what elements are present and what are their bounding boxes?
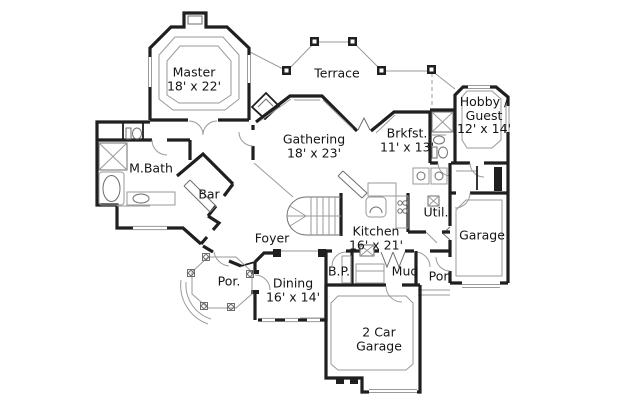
room-dims: 16' x 21' bbox=[349, 238, 403, 252]
room-dims: 18' x 22' bbox=[167, 79, 221, 93]
terrace-column-icon bbox=[310, 37, 319, 46]
room-label-porch-left: Por. bbox=[218, 274, 241, 288]
room-label-kitchen: Kitchen16' x 21' bbox=[349, 225, 403, 252]
room-name: Bar bbox=[198, 187, 219, 201]
bench-icon bbox=[356, 264, 384, 283]
room-name: Kitchen bbox=[349, 225, 403, 239]
room-name: Hobby / Guest bbox=[455, 95, 513, 122]
room-name: Foyer bbox=[255, 231, 290, 245]
closet-hall bbox=[97, 122, 190, 155]
fireplace-icon bbox=[188, 16, 202, 24]
terrace-column-icon bbox=[282, 66, 291, 75]
room-name: Brkfst. bbox=[380, 127, 434, 141]
porch-column-icon bbox=[228, 304, 235, 311]
room-name: 2 Car Garage bbox=[352, 326, 406, 353]
room-name: Terrace bbox=[314, 66, 359, 80]
room-label-bar: Bar bbox=[198, 187, 219, 201]
sink-icon bbox=[127, 192, 175, 205]
room-name: Util. bbox=[424, 205, 449, 219]
washer-dryer-icon bbox=[413, 168, 447, 184]
stairs-icon bbox=[287, 197, 341, 235]
room-name: Garage bbox=[459, 228, 505, 242]
room-label-dining: Dining16' x 14' bbox=[266, 277, 320, 304]
room-label-brkfst: Brkfst.11' x 13' bbox=[380, 127, 434, 154]
room-label-garage-two-car: 2 Car Garage bbox=[352, 326, 406, 353]
room-label-gathering: Gathering18' x 23' bbox=[283, 133, 345, 160]
terrace-column-icon bbox=[348, 37, 357, 46]
toilet-icon bbox=[432, 147, 448, 158]
room-dims: 16' x 14' bbox=[266, 290, 320, 304]
room-name: Por. bbox=[218, 274, 241, 288]
room-label-foyer: Foyer bbox=[255, 231, 290, 245]
room-name: Master bbox=[167, 66, 221, 80]
room-label-terrace: Terrace bbox=[314, 66, 359, 80]
terrace-column-icon bbox=[377, 66, 386, 75]
floor-plan-page: Master18' x 22' Terrace Hobby / Guest12'… bbox=[0, 0, 620, 415]
room-label-mbath: M.Bath bbox=[129, 161, 173, 175]
room-label-util: Util. bbox=[424, 205, 449, 219]
bathtub-icon bbox=[99, 172, 124, 205]
room-name: B.P. bbox=[328, 264, 350, 278]
room-dims: 11' x 13' bbox=[380, 140, 434, 154]
room-label-hobby-guest: Hobby / Guest12' x 14' bbox=[455, 95, 513, 136]
room-dims: 12' x 14' bbox=[455, 122, 513, 136]
island-icon bbox=[366, 197, 386, 217]
room-label-porch-right: Por. bbox=[429, 269, 452, 283]
sink-icon bbox=[432, 135, 446, 144]
room-label-bp: B.P. bbox=[328, 264, 350, 278]
room-label-mud: Mud bbox=[392, 264, 419, 278]
room-label-master: Master18' x 22' bbox=[167, 66, 221, 93]
porch-column-icon bbox=[201, 303, 208, 310]
shower-icon bbox=[432, 112, 453, 132]
room-name: Gathering bbox=[283, 133, 345, 147]
room-name: Dining bbox=[266, 277, 320, 291]
room-name: Mud bbox=[392, 264, 419, 278]
room-label-garage: Garage bbox=[459, 228, 505, 242]
porch-column-icon bbox=[203, 254, 210, 261]
floorplan-drawing bbox=[0, 0, 620, 415]
room-dims: 18' x 23' bbox=[283, 146, 345, 160]
shower-icon bbox=[99, 143, 127, 170]
toilet-icon bbox=[126, 128, 142, 139]
porch-left bbox=[181, 254, 254, 325]
bar-room bbox=[177, 154, 233, 216]
room-name: Por. bbox=[429, 269, 452, 283]
master-bath bbox=[97, 140, 201, 244]
terrace-column-icon bbox=[427, 65, 436, 74]
room-name: M.Bath bbox=[129, 161, 173, 175]
